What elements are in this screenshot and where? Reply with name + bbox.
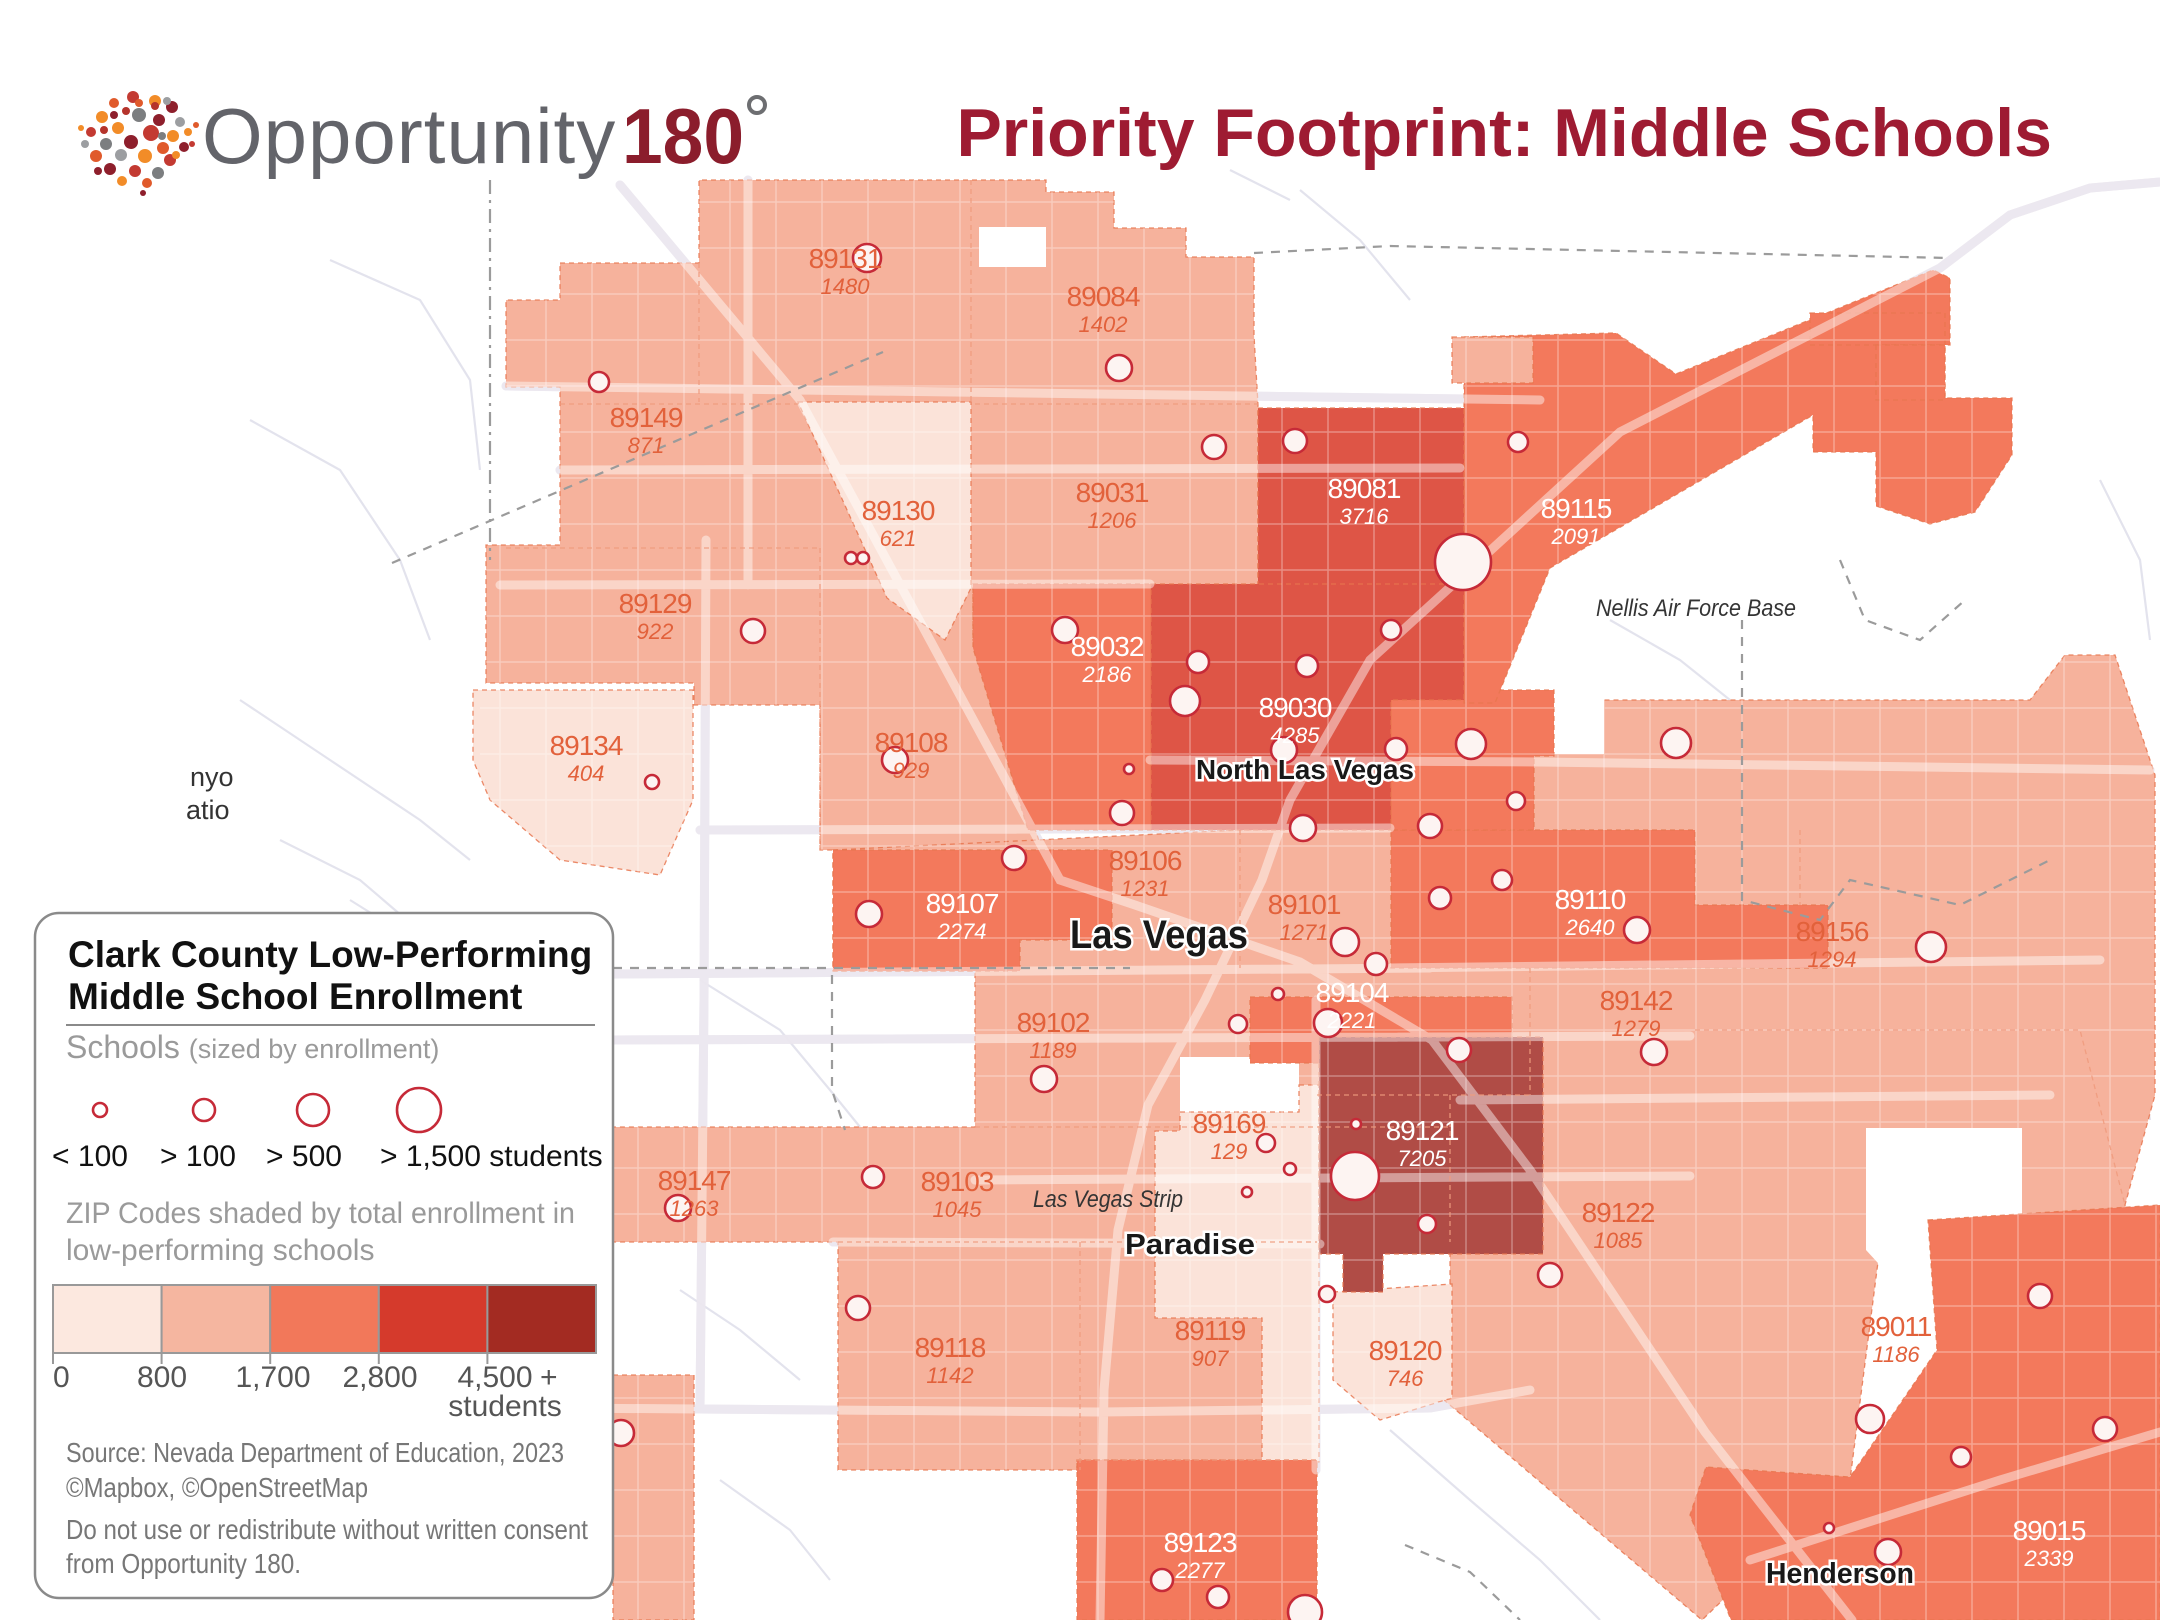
svg-text:Paradise: Paradise xyxy=(1125,1229,1255,1261)
svg-text:89169: 89169 xyxy=(1193,1108,1266,1139)
svg-text:1480: 1480 xyxy=(821,274,871,299)
svg-text:2091: 2091 xyxy=(1551,524,1601,549)
svg-text:1,700: 1,700 xyxy=(235,1361,310,1394)
svg-text:89107: 89107 xyxy=(926,888,999,919)
svg-text:89031: 89031 xyxy=(1076,477,1149,508)
svg-text:©Mapbox, ©OpenStreetMap: ©Mapbox, ©OpenStreetMap xyxy=(66,1472,368,1503)
svg-text:students: students xyxy=(448,1390,561,1423)
svg-text:Las Vegas Strip: Las Vegas Strip xyxy=(1033,1186,1183,1213)
svg-text:Clark County Low-Performing: Clark County Low-Performing xyxy=(68,934,592,975)
svg-text:4285: 4285 xyxy=(1271,723,1321,748)
svg-text:621: 621 xyxy=(880,526,917,551)
svg-text:89120: 89120 xyxy=(1369,1335,1442,1366)
svg-text:89103: 89103 xyxy=(921,1166,994,1197)
svg-text:< 100: < 100 xyxy=(52,1140,128,1173)
svg-text:89123: 89123 xyxy=(1164,1527,1237,1558)
svg-text:1294: 1294 xyxy=(1808,947,1857,972)
svg-text:1142: 1142 xyxy=(926,1363,973,1388)
svg-text:1231: 1231 xyxy=(1121,876,1170,901)
svg-text:89149: 89149 xyxy=(610,402,683,433)
svg-text:Do not use or redistribute wit: Do not use or redistribute without writt… xyxy=(66,1514,588,1545)
svg-text:North Las Vegas: North Las Vegas xyxy=(1196,754,1414,785)
svg-text:> 100: > 100 xyxy=(160,1140,236,1173)
svg-text:89110: 89110 xyxy=(1555,884,1626,915)
svg-text:Source: Nevada Department of E: Source: Nevada Department of Education, … xyxy=(66,1437,564,1468)
svg-text:89032: 89032 xyxy=(1071,631,1144,662)
svg-text:89131: 89131 xyxy=(809,243,882,274)
svg-text:low-performing schools: low-performing schools xyxy=(66,1234,374,1267)
svg-text:180: 180 xyxy=(622,92,744,180)
svg-text:89118: 89118 xyxy=(915,1332,986,1363)
svg-text:89147: 89147 xyxy=(658,1165,731,1196)
svg-text:922: 922 xyxy=(637,619,674,644)
svg-text:89156: 89156 xyxy=(1796,916,1869,947)
svg-text:1189: 1189 xyxy=(1029,1038,1076,1063)
svg-text:1186: 1186 xyxy=(1872,1342,1920,1367)
svg-text:> 1,500 students: > 1,500 students xyxy=(380,1140,603,1173)
svg-text:89015: 89015 xyxy=(2013,1515,2086,1546)
svg-text:89130: 89130 xyxy=(862,495,935,526)
svg-text:89081: 89081 xyxy=(1328,473,1401,504)
svg-text:89121: 89121 xyxy=(1386,1115,1459,1146)
svg-text:Priority Footprint: Middle Sch: Priority Footprint: Middle Schools xyxy=(956,95,2052,171)
svg-text:0: 0 xyxy=(53,1361,70,1394)
svg-text:129: 129 xyxy=(1211,1139,1248,1164)
svg-text:2277: 2277 xyxy=(1175,1558,1226,1583)
svg-text:89084: 89084 xyxy=(1067,281,1140,312)
svg-text:1402: 1402 xyxy=(1079,312,1128,337)
svg-text:atio: atio xyxy=(186,795,230,825)
svg-text:2,800: 2,800 xyxy=(342,1361,417,1394)
svg-text:1279: 1279 xyxy=(1612,1016,1661,1041)
svg-text:89108: 89108 xyxy=(875,727,948,758)
svg-text:89030: 89030 xyxy=(1259,692,1332,723)
svg-text:Henderson: Henderson xyxy=(1766,1558,1914,1590)
svg-text:89101: 89101 xyxy=(1268,889,1341,920)
svg-text:89104: 89104 xyxy=(1316,977,1389,1008)
svg-text:89134: 89134 xyxy=(550,730,623,761)
svg-text:871: 871 xyxy=(628,433,665,458)
svg-text:2640: 2640 xyxy=(1565,915,1616,940)
svg-text:89102: 89102 xyxy=(1017,1007,1090,1038)
svg-text:1271: 1271 xyxy=(1280,920,1329,945)
svg-text:2339: 2339 xyxy=(2024,1546,2074,1571)
svg-text:from Opportunity 180.: from Opportunity 180. xyxy=(66,1548,301,1579)
svg-text:1206: 1206 xyxy=(1088,508,1138,533)
svg-text:89129: 89129 xyxy=(619,588,692,619)
svg-text:800: 800 xyxy=(137,1361,187,1394)
svg-text:ZIP Codes shaded by total enro: ZIP Codes shaded by total enrollment in xyxy=(66,1197,575,1230)
svg-text:Opportunity: Opportunity xyxy=(202,92,616,180)
svg-text:Las Vegas: Las Vegas xyxy=(1070,913,1248,957)
svg-text:1045: 1045 xyxy=(933,1197,983,1222)
svg-text:3716: 3716 xyxy=(1340,504,1390,529)
svg-text:1085: 1085 xyxy=(1594,1228,1644,1253)
svg-text:2274: 2274 xyxy=(937,919,987,944)
svg-text:1263: 1263 xyxy=(670,1196,720,1221)
svg-text:nyo: nyo xyxy=(190,762,234,792)
svg-text:746: 746 xyxy=(1387,1366,1424,1391)
svg-text:2221: 2221 xyxy=(1327,1008,1377,1033)
svg-text:2186: 2186 xyxy=(1082,662,1133,687)
svg-text:7205: 7205 xyxy=(1398,1146,1448,1171)
svg-text:89119: 89119 xyxy=(1175,1315,1246,1346)
svg-text:404: 404 xyxy=(568,761,605,786)
svg-text:Nellis Air Force Base: Nellis Air Force Base xyxy=(1596,595,1796,622)
svg-text:907: 907 xyxy=(1192,1346,1229,1371)
svg-text:929: 929 xyxy=(893,758,930,783)
svg-text:Middle School Enrollment: Middle School Enrollment xyxy=(68,976,522,1017)
svg-text:> 500: > 500 xyxy=(266,1140,342,1173)
svg-text:89115: 89115 xyxy=(1541,493,1612,524)
svg-text:Schools (sized by enrollment): Schools (sized by enrollment) xyxy=(66,1029,439,1065)
svg-text:89122: 89122 xyxy=(1582,1197,1655,1228)
svg-text:89142: 89142 xyxy=(1600,985,1673,1016)
svg-text:89011: 89011 xyxy=(1861,1311,1932,1342)
svg-text:89106: 89106 xyxy=(1109,845,1182,876)
